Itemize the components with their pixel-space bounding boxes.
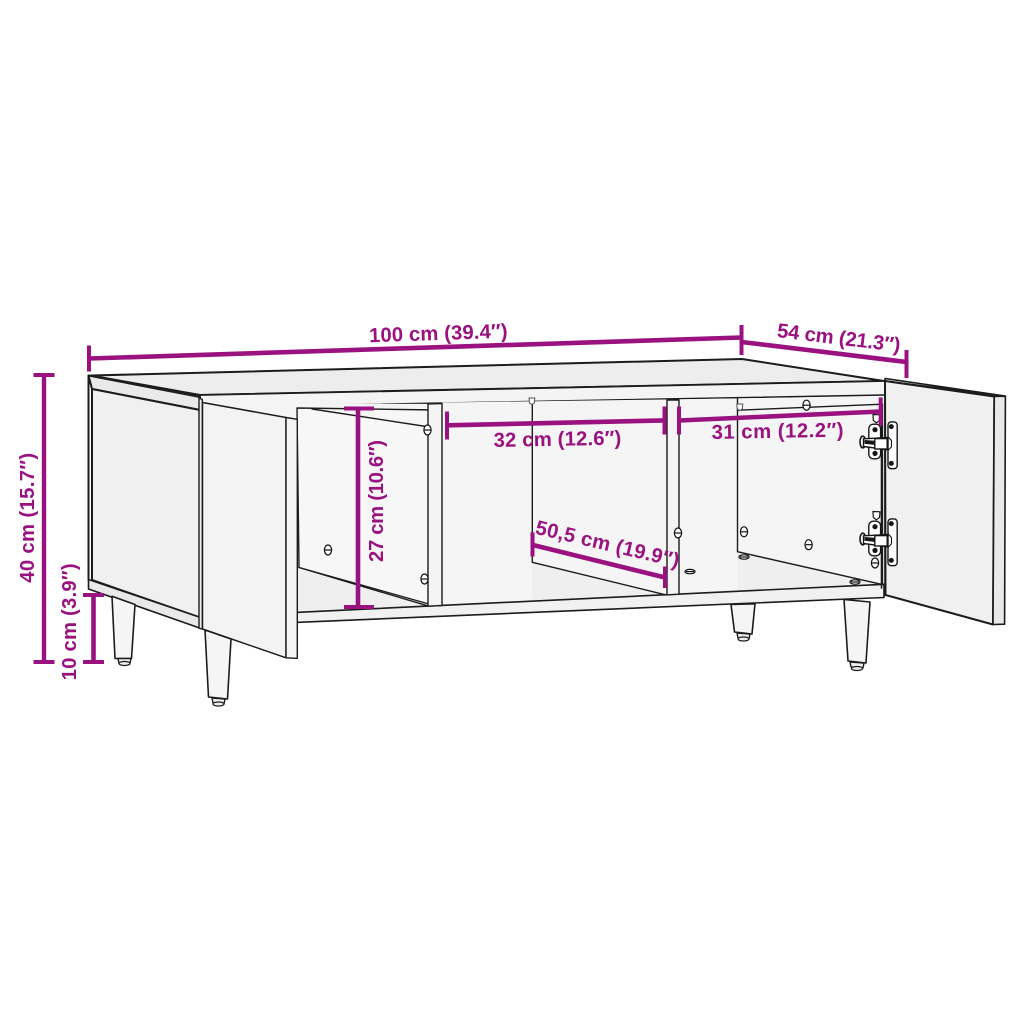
svg-text:27 cm (10.6″): 27 cm (10.6″) xyxy=(366,440,388,562)
svg-text:10 cm (3.9″): 10 cm (3.9″) xyxy=(59,563,81,680)
svg-text:32 cm (12.6″): 32 cm (12.6″) xyxy=(493,428,621,452)
svg-text:100 cm (39.4″): 100 cm (39.4″) xyxy=(369,321,508,347)
svg-text:40 cm (15.7″): 40 cm (15.7″) xyxy=(17,453,39,583)
svg-text:31 cm (12.2″): 31 cm (12.2″) xyxy=(711,420,843,444)
